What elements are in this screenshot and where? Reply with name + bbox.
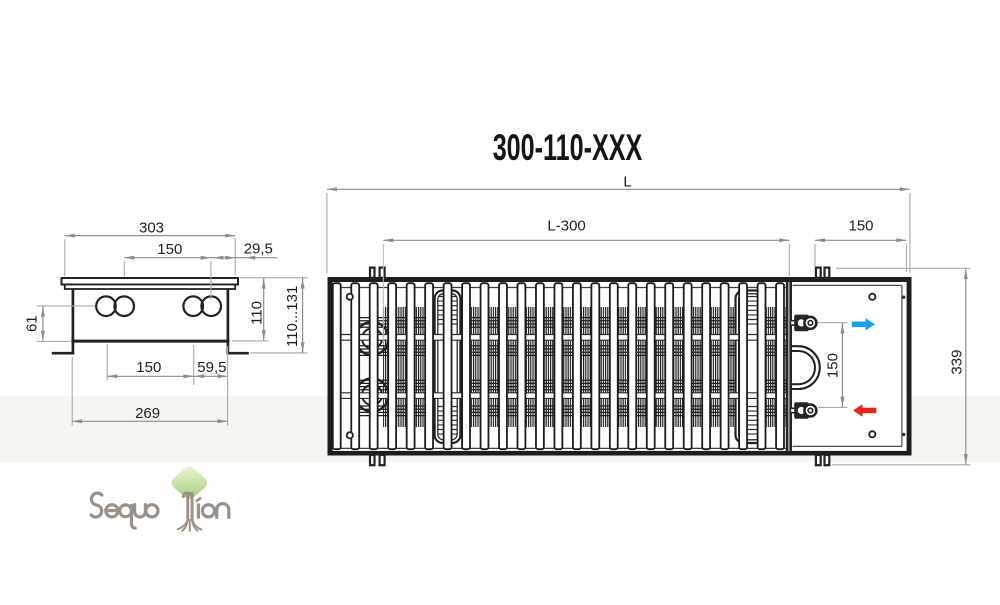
svg-text:L: L <box>623 173 631 190</box>
svg-text:L-300: L-300 <box>547 217 585 234</box>
svg-text:59,5: 59,5 <box>197 359 226 376</box>
svg-text:61: 61 <box>24 315 41 332</box>
svg-text:150: 150 <box>824 353 841 378</box>
svg-text:110...131: 110...131 <box>284 286 301 347</box>
svg-text:110: 110 <box>249 301 266 325</box>
svg-text:339: 339 <box>949 350 966 375</box>
svg-text:150: 150 <box>157 241 182 258</box>
svg-text:269: 269 <box>135 405 160 422</box>
svg-text:150: 150 <box>136 359 161 376</box>
svg-text:303: 303 <box>139 219 164 236</box>
svg-text:29,5: 29,5 <box>244 241 273 258</box>
svg-text:300-110-XXX: 300-110-XXX <box>493 126 643 168</box>
svg-text:150: 150 <box>848 217 873 234</box>
